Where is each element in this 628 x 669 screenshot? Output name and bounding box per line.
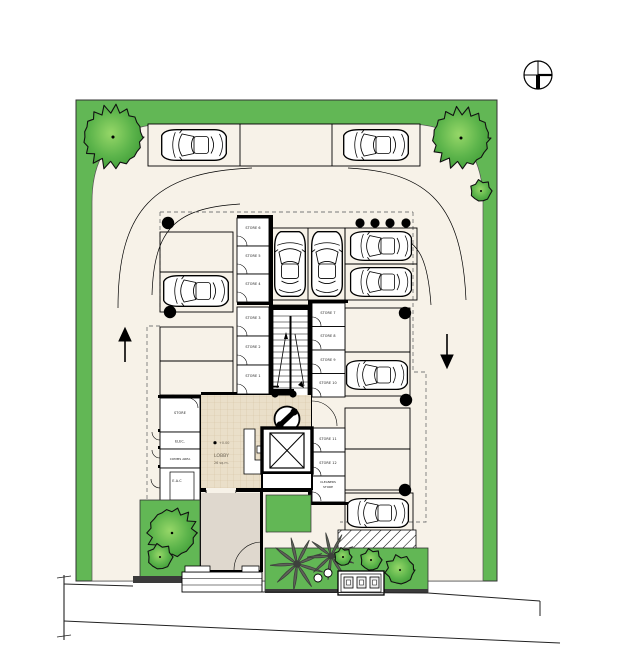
north-arrow-icon <box>524 61 552 89</box>
elevator-icon <box>262 428 312 489</box>
lobby-level-label: +0.00 <box>219 441 229 445</box>
cleaners-store-label: CLEANERS <box>320 480 336 484</box>
store-8-label: STORE 8 <box>320 334 335 338</box>
store-7-label: STORE 7 <box>320 311 335 315</box>
store-6-label: STORE 6 <box>245 226 260 230</box>
lobby-label: LOBBY <box>214 453 229 459</box>
level-marker-icon <box>213 441 216 444</box>
hatched-paving-strip <box>338 530 416 550</box>
store-9-label: STORE 9 <box>320 358 335 362</box>
comms-area-label: COMMS AREA <box>170 457 192 461</box>
stone-icon <box>314 574 322 582</box>
entry-planter <box>266 495 311 532</box>
store-4-label: STORE 4 <box>245 282 260 286</box>
stone-icon <box>324 569 332 577</box>
cleaners-store-label2: STORE <box>323 485 333 489</box>
stairs-icon <box>273 305 308 397</box>
store-12-label: STORE 12 <box>319 461 337 465</box>
eac-room-label: E.A.C <box>172 479 182 483</box>
lobby-area-label: 26 sq.m. <box>214 461 229 465</box>
store-3-label: STORE 3 <box>245 316 260 320</box>
store-10-label: STORE 10 <box>319 381 337 385</box>
store-5-label: STORE 5 <box>245 254 260 258</box>
utility-meter-box-icon <box>338 571 384 595</box>
store-1-label: STORE 1 <box>245 374 260 378</box>
entrance-vestibule <box>201 493 260 570</box>
elec-room-label: ELEC. <box>175 440 185 444</box>
store-2-label: STORE 2 <box>245 345 260 349</box>
store-11-label: STORE 11 <box>319 437 337 441</box>
utility-store-label: STORE <box>174 411 186 415</box>
site-plan-drawing: STORE 6 STORE 5 STORE 4 STORE 3 STORE 2 … <box>0 0 628 669</box>
floor-plan-canvas: STORE 6 STORE 5 STORE 4 STORE 3 STORE 2 … <box>0 0 628 669</box>
